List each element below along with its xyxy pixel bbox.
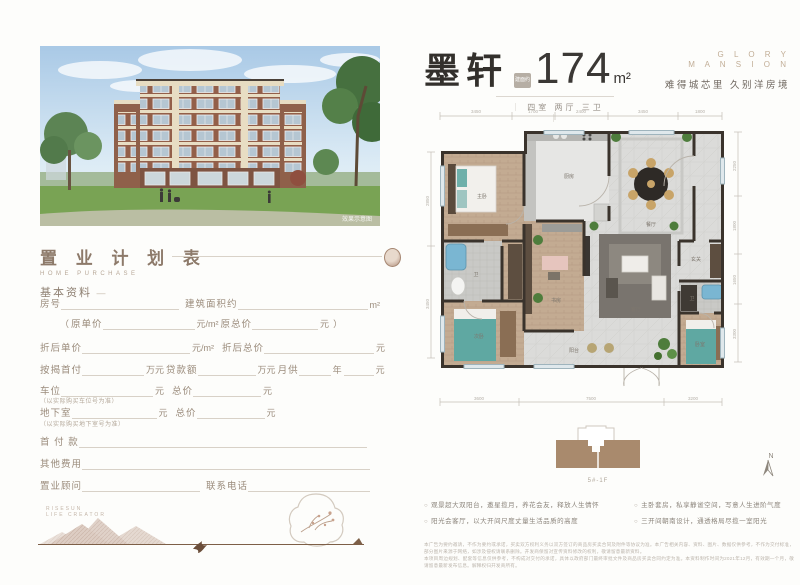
room-no-line xyxy=(61,298,179,310)
form-row-room-area: 房号 建筑面积约 m² xyxy=(40,296,382,310)
disc-total-line xyxy=(264,342,374,354)
bullet-circle-icon: ○ xyxy=(634,519,638,525)
svg-text:卧室: 卧室 xyxy=(695,341,705,348)
seal-medallion-icon xyxy=(384,248,401,267)
orig-unit-price-line xyxy=(103,318,195,330)
downpay-label: 首 付 款 xyxy=(40,434,79,448)
monthly-year-line xyxy=(344,364,374,376)
disc-total-unit: 元 xyxy=(376,341,385,354)
brand-slogan: 难得城芯里 久别洋房境 xyxy=(665,77,790,91)
footprint-label: 5#-1F xyxy=(548,478,648,484)
consultant-label: 置业顾问 xyxy=(40,478,82,492)
svg-text:卫: 卫 xyxy=(473,272,478,278)
orig-total-label: 原总价 xyxy=(221,316,253,330)
title-divider-line xyxy=(172,256,382,257)
disc-price-unit: 元/m² xyxy=(192,341,214,354)
photo-watermark: 效果示意图 xyxy=(342,215,372,223)
basement-total-line xyxy=(197,407,265,419)
svg-text:主卧: 主卧 xyxy=(477,193,487,200)
down-line xyxy=(82,364,144,376)
compass-n-label: N xyxy=(768,453,773,460)
bullet-circle-icon: ○ xyxy=(634,503,638,509)
form-row-original-price: （ 原单价 元/m² 原总价 元 ） xyxy=(58,316,344,330)
form-row-consultant: 置业顾问 联系电话 xyxy=(40,478,370,492)
brand-block: G L O R Y M A N S I O N 难得城芯里 久别洋房境 xyxy=(665,50,790,91)
svg-text:玄关: 玄关 xyxy=(691,256,701,263)
north-compass: N xyxy=(756,450,780,480)
legal-disclaimer: 本广告为要约邀请，不作为要约或承诺，买卖双方权利义务以双方签订的商品房买卖合同及… xyxy=(424,541,794,569)
orig-unit-price-unit: 元/m² xyxy=(197,317,219,330)
loan-label: 贷款额 xyxy=(166,362,198,376)
parking-note: （以实际购买车位号为准） xyxy=(40,396,118,405)
svg-text:2250: 2250 xyxy=(732,160,737,171)
down-unit: 万元 xyxy=(146,363,164,376)
loan-unit: 万元 xyxy=(258,363,276,376)
plan-subtitle: HOME PURCHASE xyxy=(40,271,380,277)
monthly-line xyxy=(299,364,331,376)
svg-text:餐厅: 餐厅 xyxy=(646,221,656,228)
basement-line xyxy=(72,407,157,419)
basement-total-label: 总价 xyxy=(176,405,197,419)
brand-mansion: M A N S I O N xyxy=(665,60,790,70)
form-row-mortgage: 按揭首付 万元 贷款额 万元 月供 年 元 xyxy=(40,362,387,376)
disc-price-line xyxy=(82,342,190,354)
svg-text:3450: 3450 xyxy=(425,298,430,309)
brand-glory: G L O R Y xyxy=(665,50,790,60)
disclaimer-line1: 本广告为要约邀请，不作为要约或承诺，买卖双方权利义务以双方签订的商品房买卖合同及… xyxy=(424,541,794,555)
orig-unit-price-label: 原单价 xyxy=(71,316,103,330)
basement-label: 地下室 xyxy=(40,405,72,419)
phone-label: 联系电话 xyxy=(206,478,248,492)
unit-area-unit: m² xyxy=(613,70,631,87)
bullet-item: ○三开间朝南设计，通透格局尽揽一室阳光 xyxy=(634,514,781,530)
selling-points: ○观景超大双阳台，邀星揽月，养花会友，释放人生情怀 ○阳光会客厅，以大开间尺度丈… xyxy=(424,498,796,530)
bullet-circle-icon: ○ xyxy=(424,519,428,525)
svg-text:客厅: 客厅 xyxy=(631,306,641,313)
area-unit: m² xyxy=(370,300,381,310)
building-photo-illustration: 效果示意图 xyxy=(40,46,380,226)
svg-text:1650: 1650 xyxy=(732,274,737,285)
unit-area: 174 xyxy=(535,44,611,94)
svg-text:卫: 卫 xyxy=(689,296,694,302)
svg-text:1800: 1800 xyxy=(695,109,706,114)
basement-note: （以实际购买地下室号为准） xyxy=(40,419,125,428)
svg-text:7500: 7500 xyxy=(586,396,597,401)
parking-unit: 元 xyxy=(155,384,164,397)
svg-text:3600: 3600 xyxy=(474,396,485,401)
area-line xyxy=(238,298,368,310)
consultant-line xyxy=(82,480,200,492)
unit-name: 墨轩 xyxy=(424,42,508,94)
monthly-label: 月供 xyxy=(278,362,299,376)
down-label: 按揭首付 xyxy=(40,362,82,376)
form-row-downpay: 首 付 款 xyxy=(40,434,367,448)
building xyxy=(114,79,306,188)
svg-text:3450: 3450 xyxy=(638,109,649,114)
paren-open: （ xyxy=(60,317,69,330)
disc-total-label: 折后总价 xyxy=(222,340,264,354)
parking-total-line xyxy=(193,385,261,397)
area-stamp-icon: 建面约 xyxy=(514,73,531,88)
form-row-basement: 地下室 元 总价 元 xyxy=(40,405,278,419)
svg-text:3300: 3300 xyxy=(732,328,737,339)
orig-total-unit: 元 xyxy=(320,317,329,330)
left-footer-decoration: RISESUN LIFE CREATOR xyxy=(40,498,385,568)
floor-plan: 3450 1700 2400 3450 1800 3600 7500 3200 … xyxy=(424,106,746,428)
other-fee-line xyxy=(82,458,370,470)
building-rendering-photo: 效果示意图 xyxy=(40,46,380,226)
unit-header: 墨轩 建面约 174 m² ｜四室 两厅 三卫｜ G L O R Y M A N… xyxy=(424,42,790,112)
bullet-item: ○主卧套房，私享静谧空间，写意人生进阶气度 xyxy=(634,498,781,514)
parking-total-label: 总价 xyxy=(172,383,193,397)
svg-text:阳台: 阳台 xyxy=(569,347,579,354)
form-row-other: 其他费用 xyxy=(40,456,370,470)
orig-total-line xyxy=(252,318,318,330)
monthly-mid: 年 xyxy=(333,363,342,376)
flower-medallion-illustration xyxy=(285,492,347,548)
svg-text:2850: 2850 xyxy=(425,195,430,206)
form-row-parking: 车位 元 总价 元 xyxy=(40,383,274,397)
loan-line xyxy=(198,364,256,376)
basement-total-unit: 元 xyxy=(267,406,276,419)
basement-unit: 元 xyxy=(159,406,168,419)
parking-label: 车位 xyxy=(40,383,61,397)
paren-close: ） xyxy=(333,317,342,330)
parking-total-unit: 元 xyxy=(263,384,272,397)
svg-text:厨房: 厨房 xyxy=(564,173,574,180)
footer-sail-triangle xyxy=(352,538,363,545)
svg-text:1700: 1700 xyxy=(528,109,539,114)
phone-line xyxy=(248,480,370,492)
svg-text:次卧: 次卧 xyxy=(474,333,484,340)
home-purchase-header: 置 业 计 划 表 HOME PURCHASE xyxy=(40,244,380,274)
other-fee-label: 其他费用 xyxy=(40,456,82,470)
downpay-line xyxy=(79,436,367,448)
svg-text:2400: 2400 xyxy=(576,109,587,114)
form-row-discount: 折后单价 元/m² 折后总价 元 xyxy=(40,340,387,354)
svg-text:书房: 书房 xyxy=(551,297,561,304)
bullet-circle-icon: ○ xyxy=(424,503,428,509)
bird-icon xyxy=(192,540,212,554)
monthly-unit: 元 xyxy=(376,363,385,376)
disclaimer-line2: 本项目周边规划、配套等信息仅供参考，不构成对交付的承诺，具体以政府部门最终审批文… xyxy=(424,555,794,569)
footprint-diagram xyxy=(548,424,648,472)
svg-text:3450: 3450 xyxy=(471,109,482,114)
svg-text:1800: 1800 xyxy=(732,220,737,231)
room-no-label: 房号 xyxy=(40,296,61,310)
area-label: 建筑面积约 xyxy=(185,296,238,310)
building-footprint-key: 5#-1F xyxy=(548,424,648,482)
svg-text:3200: 3200 xyxy=(688,396,699,401)
mountains-illustration xyxy=(40,512,200,546)
disc-price-label: 折后单价 xyxy=(40,340,82,354)
